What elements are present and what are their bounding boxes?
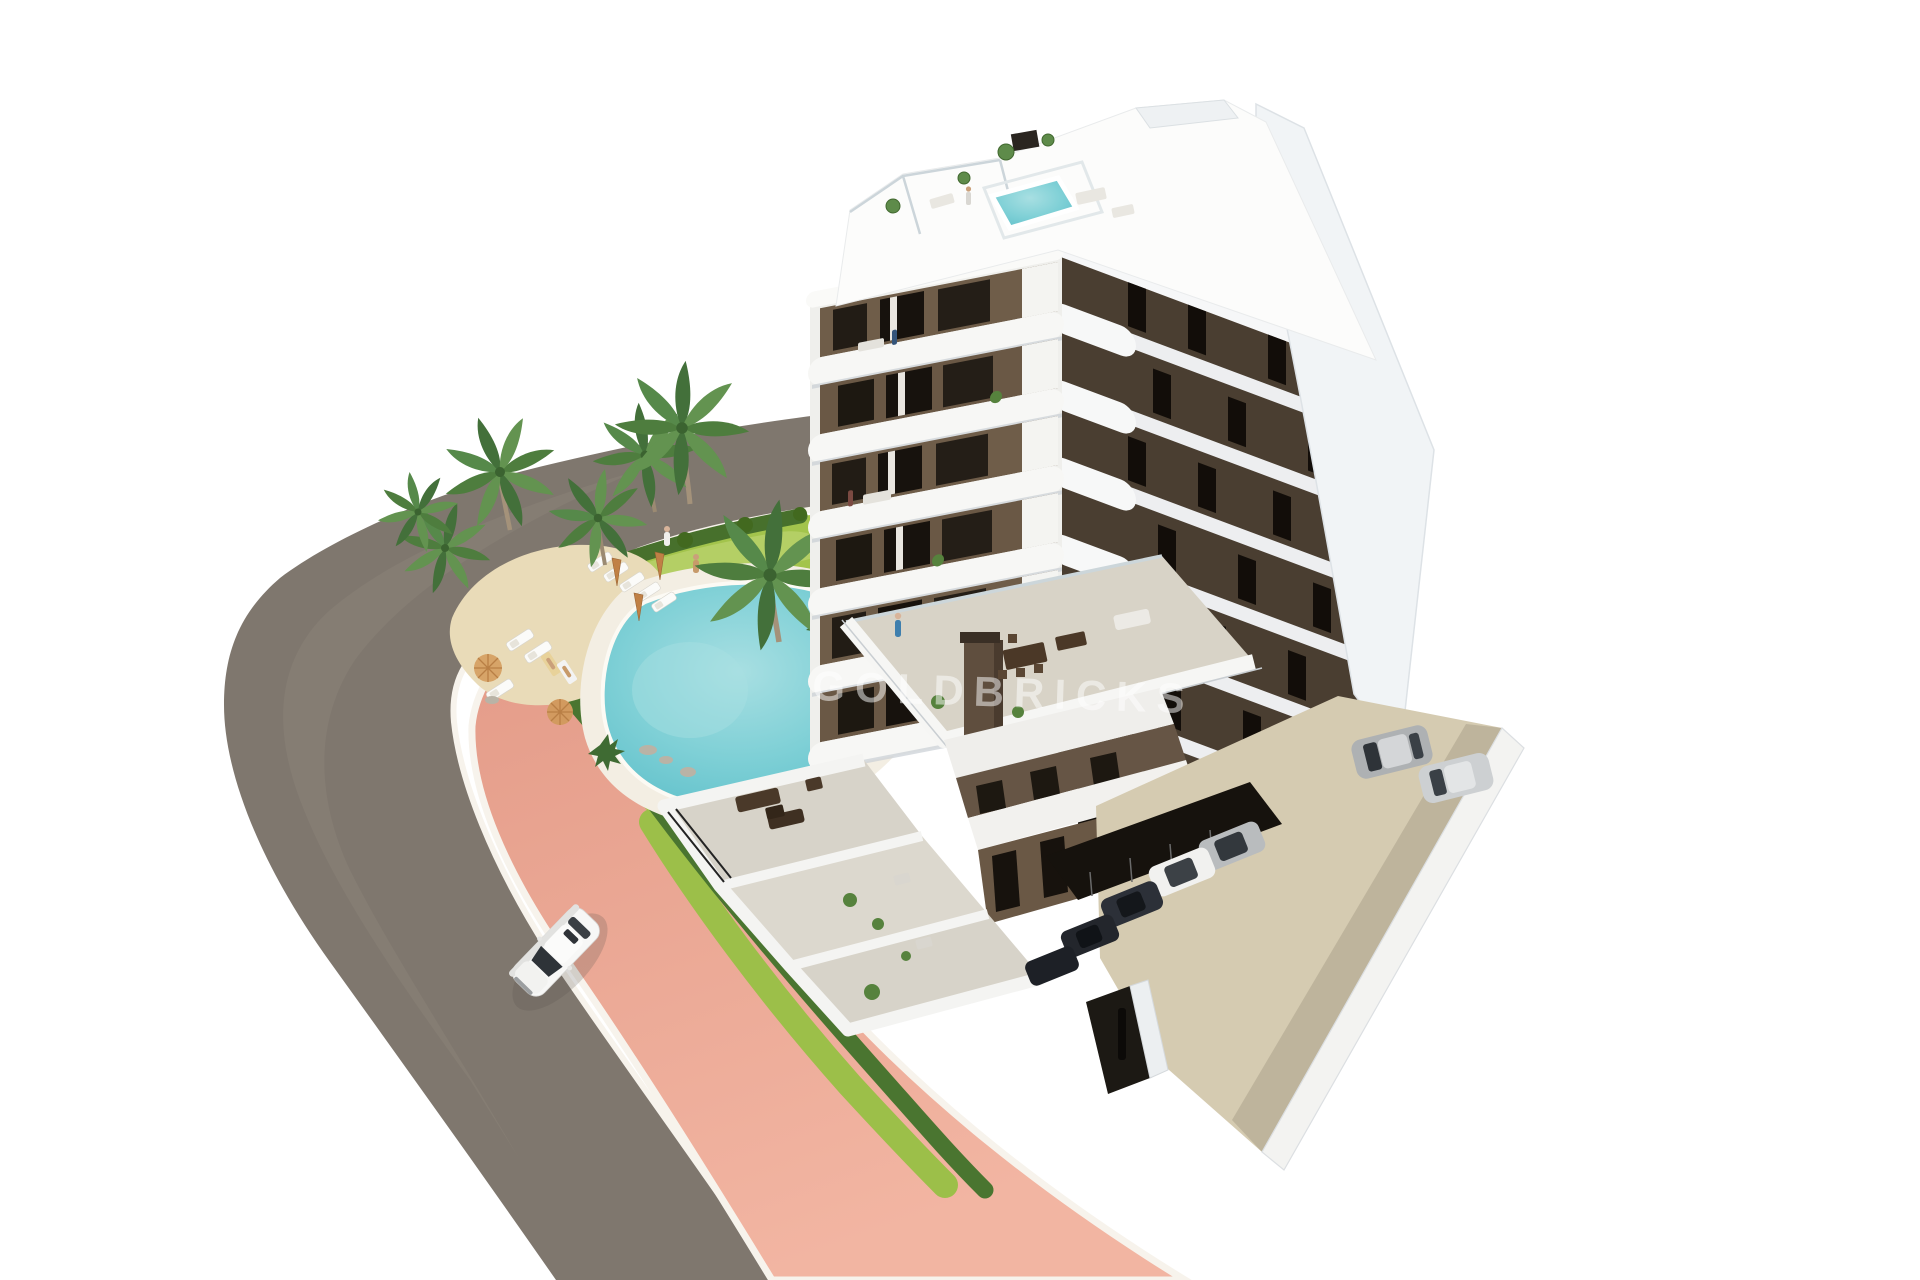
open-parasol (474, 654, 502, 682)
parked-car (1023, 944, 1081, 988)
open-parasol (547, 699, 573, 725)
person (895, 613, 901, 637)
render-image: GOLDBRICKS (0, 0, 1920, 1280)
person (664, 526, 670, 546)
person (966, 186, 971, 205)
pool-shallow (632, 642, 748, 738)
scene-svg: GOLDBRICKS (0, 0, 1920, 1280)
person (693, 554, 699, 573)
person (892, 329, 897, 345)
person (848, 490, 853, 507)
